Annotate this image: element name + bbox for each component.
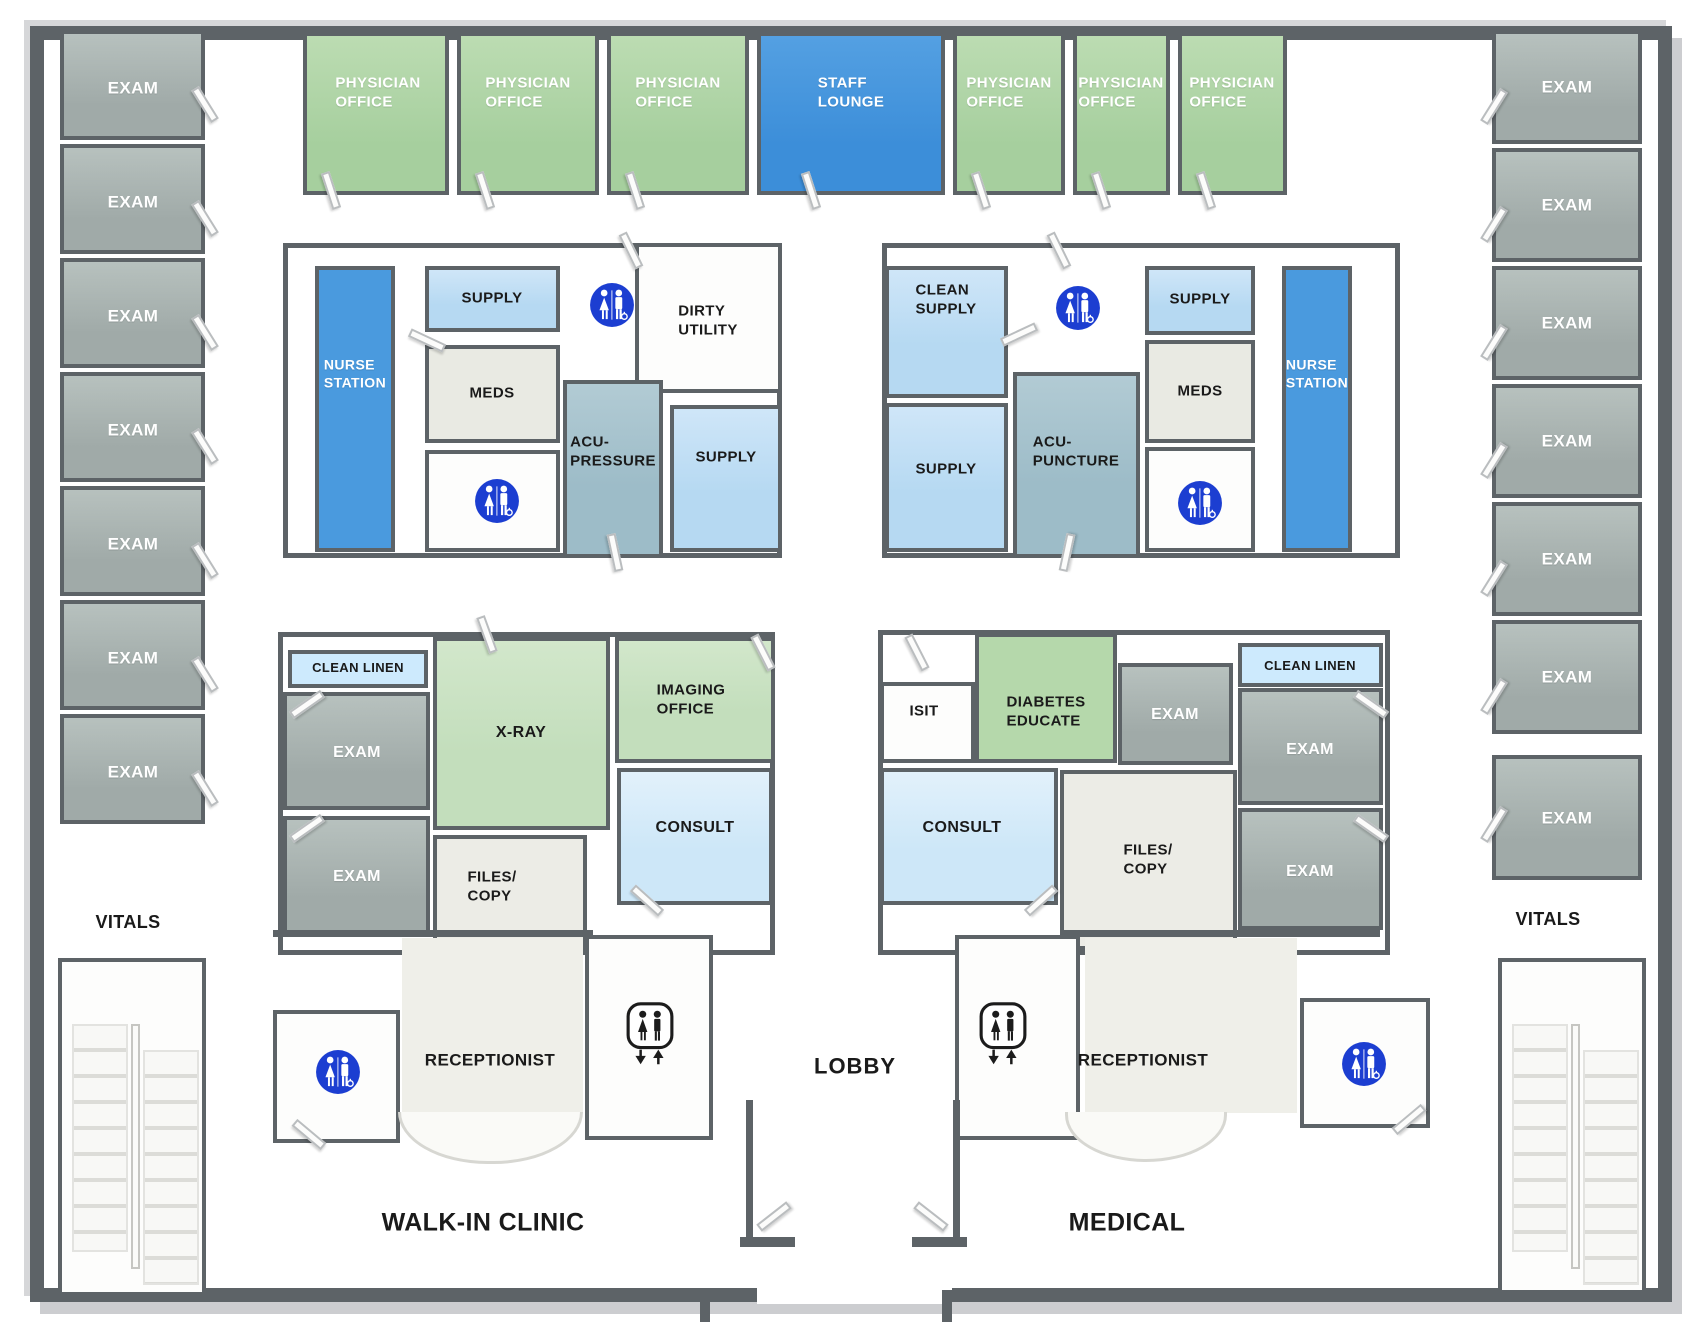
room-label: X-RAY: [496, 723, 546, 743]
room-label: PHYSICIAN OFFICE: [966, 74, 1051, 112]
stairwell: [58, 958, 206, 1296]
room-label: EXAM: [1151, 705, 1199, 725]
room-label: SUPPLY: [915, 461, 976, 480]
room-label: EXAM: [108, 77, 159, 98]
reception-floor: [402, 938, 583, 1113]
room-label: NURSE STATION: [1286, 357, 1348, 392]
room-physician-office: [953, 32, 1065, 195]
room-label: CONSULT: [656, 818, 735, 838]
room-label: EXAM: [1542, 666, 1593, 687]
stairs-icon: [1512, 1024, 1568, 1252]
zone-label-receptionist: RECEPTIONIST: [1078, 1049, 1208, 1070]
room-label: SUPPLY: [461, 290, 522, 309]
wall-segment: [700, 1290, 710, 1322]
room-label: EXAM: [1542, 430, 1593, 451]
room-label: EXAM: [1542, 548, 1593, 569]
room-physician-office: [457, 32, 599, 195]
room-isit: [880, 682, 975, 763]
room-supply: [670, 405, 782, 552]
restroom-icon: [589, 282, 635, 328]
room-label: EXAM: [108, 191, 159, 212]
room-label: NURSE STATION: [324, 357, 386, 392]
room-label: IMAGING OFFICE: [657, 681, 726, 719]
room-label: EXAM: [1542, 194, 1593, 215]
room-label: SUPPLY: [695, 449, 756, 468]
room-label: MEDS: [470, 385, 515, 404]
room-label: EXAM: [1542, 312, 1593, 333]
room-label: EXAM: [1542, 76, 1593, 97]
room-physician-office: [1178, 32, 1287, 195]
room-physician-office: [303, 32, 449, 195]
restroom-icon: [315, 1049, 361, 1095]
room-label: ISIT: [909, 703, 938, 722]
zone-label-receptionist: RECEPTIONIST: [425, 1049, 555, 1070]
stairs-icon: [72, 1024, 128, 1252]
room-label: EXAM: [108, 761, 159, 782]
wall-segment: [942, 1290, 952, 1322]
room-label: FILES/ COPY: [467, 868, 516, 906]
stair-rail: [1571, 1024, 1580, 1269]
room-label: EXAM: [108, 419, 159, 440]
room-label: CLEAN SUPPLY: [915, 281, 976, 319]
room-label: EXAM: [1286, 862, 1334, 882]
room-label: PHYSICIAN OFFICE: [1189, 74, 1274, 112]
room-label: MEDS: [1178, 383, 1223, 402]
room-label: PHYSICIAN OFFICE: [335, 74, 420, 112]
restroom-icon: [1177, 480, 1223, 526]
elevator-icon: [625, 1000, 675, 1066]
room-physician-office: [607, 32, 749, 195]
reception-floor: [1085, 938, 1297, 1113]
room-label: CLEAN LINEN: [1264, 658, 1356, 674]
wall-segment: [953, 1100, 960, 1240]
room-label: PHYSICIAN OFFICE: [485, 74, 570, 112]
room-label: CONSULT: [923, 818, 1002, 838]
restroom-icon: [1341, 1041, 1387, 1087]
zone-label-walk-in-clinic: WALK-IN CLINIC: [382, 1207, 585, 1238]
wall-segment: [1060, 930, 1380, 937]
room-label: EXAM: [1286, 740, 1334, 760]
room-label: EXAM: [1542, 807, 1593, 828]
room-nurse-station: [1282, 266, 1352, 552]
room-label: EXAM: [108, 647, 159, 668]
room-label: FILES/ COPY: [1123, 841, 1172, 879]
room-nurse-station: [315, 266, 395, 552]
room-label: PHYSICIAN OFFICE: [1078, 74, 1163, 112]
wall-segment: [740, 1237, 795, 1247]
zone-label-lobby: LOBBY: [814, 1052, 896, 1080]
wall-segment: [912, 1237, 967, 1247]
room-label: CLEAN LINEN: [312, 660, 404, 676]
stair-rail: [131, 1024, 140, 1269]
medical-clinic-floor-plan: EXAM EXAM EXAM EXAM EXAM EXAM EXAM VITAL…: [0, 0, 1700, 1324]
room-physician-office: [1073, 32, 1170, 195]
room-label: EXAM: [333, 743, 381, 763]
room-label: DIABETES EDUCATE: [1006, 693, 1085, 731]
room-label: SUPPLY: [1169, 291, 1230, 310]
zone-label-vitals: VITALS: [1515, 908, 1580, 931]
zone-label-medical: MEDICAL: [1069, 1207, 1186, 1238]
room-label: EXAM: [108, 533, 159, 554]
stairwell: [1498, 958, 1646, 1294]
restroom-icon: [474, 478, 520, 524]
zone-label-vitals: VITALS: [95, 911, 160, 934]
restroom-icon: [1055, 285, 1101, 331]
room-label: STAFF LOUNGE: [818, 74, 885, 112]
room-label: ACU- PUNCTURE: [1033, 433, 1120, 471]
entrance-opening: [757, 1284, 952, 1304]
stairs-icon: [143, 1050, 199, 1285]
room-label: ACU- PRESSURE: [570, 433, 656, 471]
room-label: EXAM: [333, 867, 381, 887]
stairs-icon: [1583, 1050, 1639, 1285]
room-label: EXAM: [108, 305, 159, 326]
wall-segment: [746, 1100, 753, 1240]
elevator-icon: [978, 1000, 1028, 1066]
room-label: PHYSICIAN OFFICE: [635, 74, 720, 112]
wall-segment: [273, 930, 593, 937]
room-staff-lounge: [757, 32, 945, 195]
room-label: DIRTY UTILITY: [678, 302, 737, 340]
